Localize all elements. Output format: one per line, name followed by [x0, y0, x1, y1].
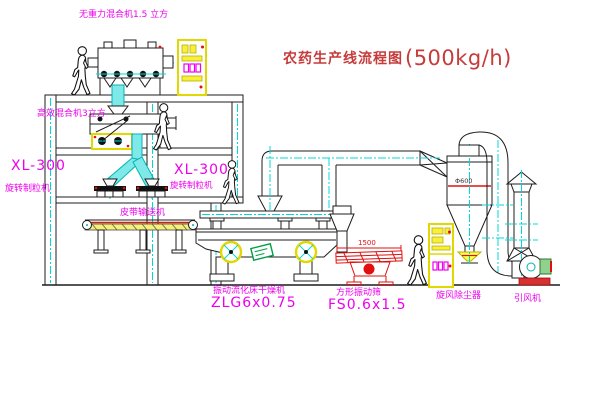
induced-draft-fan	[519, 256, 551, 286]
granulator-left	[94, 177, 126, 199]
person-figure	[72, 47, 90, 95]
label-granulator-left-name: 旋转制粒机	[5, 185, 50, 194]
label-granulator-right-name: 旋转制粒机	[170, 182, 213, 191]
process-flow-drawing: 农药生产线流程图 (500kg/h) 无重力混合机1.5 立方 高效混合机3立方…	[0, 0, 600, 403]
cyclone-dimension-text: Φ600	[455, 178, 473, 185]
granulator-right	[136, 177, 168, 199]
label-belt-conveyor: 皮带输送机	[120, 209, 165, 218]
label-dryer-model: ZLG6x0.75	[211, 296, 297, 310]
label-fan: 引风机	[514, 295, 541, 304]
drawing-title: 农药生产线流程图 (500kg/h)	[283, 46, 512, 70]
label-cyclone: 旋风除尘器	[436, 292, 481, 301]
title-text: 农药生产线流程图	[283, 48, 403, 68]
exhaust-duct	[258, 146, 447, 214]
screen-dimension-text: 1500	[358, 240, 376, 247]
belt-conveyor	[83, 220, 198, 253]
control-cabinet-2	[429, 224, 453, 287]
title-capacity: (500kg/h)	[405, 46, 512, 70]
label-gravity-mixer: 无重力混合机1.5 立方	[79, 11, 168, 20]
label-screen-model: FS0.6x1.5	[328, 298, 407, 312]
fluid-bed-dryer	[196, 211, 338, 281]
person-figure	[408, 236, 427, 285]
label-high-eff-mixer: 高效混合机3立方	[37, 110, 106, 119]
label-granulator-right-model: XL-300	[174, 163, 229, 177]
label-granulator-left-model: XL-300	[11, 159, 66, 173]
control-cabinet-1	[178, 40, 206, 95]
